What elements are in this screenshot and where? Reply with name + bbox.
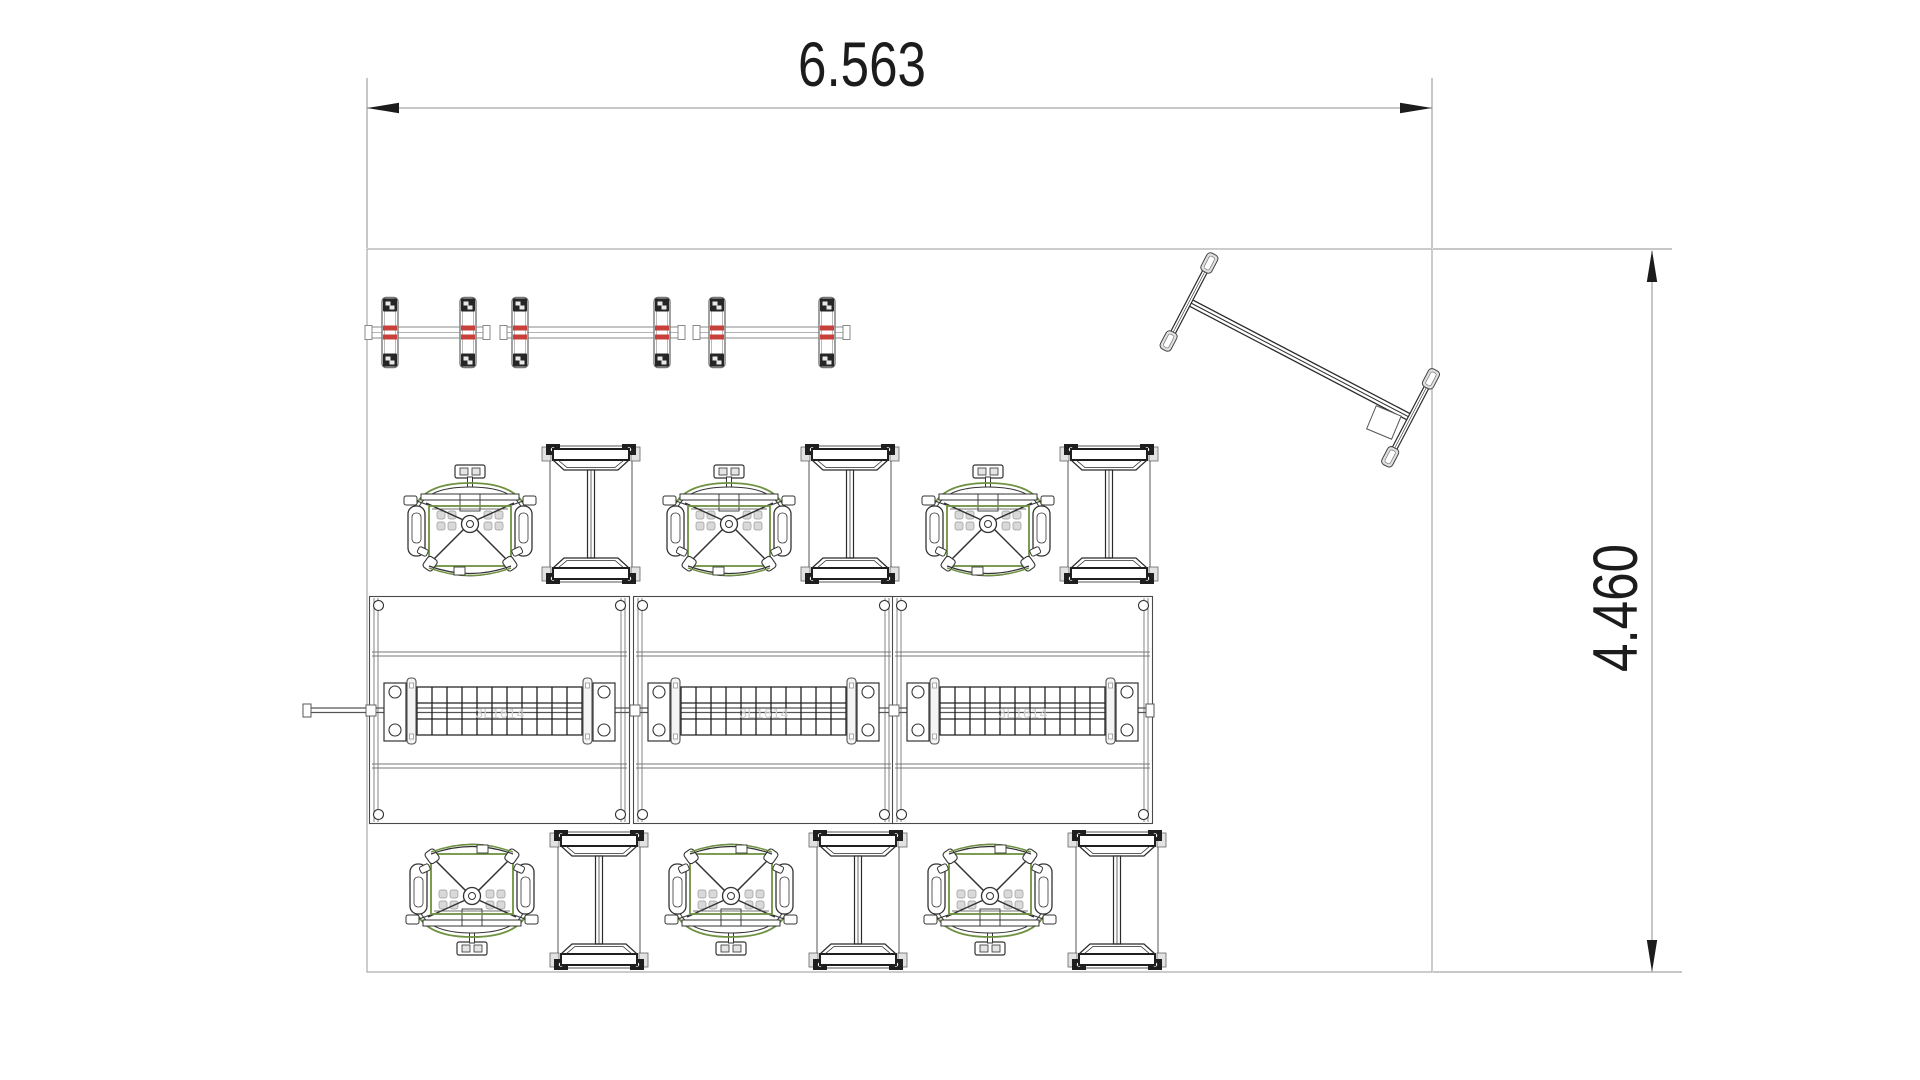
shelf-post	[382, 298, 398, 368]
desk-part-label: 3L1614	[475, 705, 525, 721]
office-chair	[665, 844, 797, 955]
arrowhead-left	[367, 103, 399, 113]
shelf-post	[654, 298, 670, 368]
shelf-rail-endcap	[500, 326, 507, 340]
desk-rail-connector	[366, 705, 376, 716]
shelf-rail-endcap	[693, 326, 700, 340]
side-table	[542, 444, 640, 584]
shelf-rail-endcap	[678, 326, 685, 340]
shelf-rail-endcap	[365, 326, 372, 340]
desk-part-label: 3L1614	[739, 705, 789, 721]
office-chair	[663, 465, 795, 576]
office-chair	[924, 844, 1056, 955]
side-table	[809, 830, 907, 970]
shelf-rail-endcap	[483, 326, 490, 340]
desk-rail-endcap	[303, 704, 311, 717]
side-table	[1068, 830, 1166, 970]
shelf-post	[460, 298, 476, 368]
cad-drawing: 3L16143L16143L1614 6.563 4.460	[0, 0, 1920, 1080]
shelf-post	[819, 298, 835, 368]
furniture-layer: 3L16143L16143L1614	[303, 251, 1441, 970]
vertical-dimension-text: 4.460	[1581, 544, 1651, 672]
desk-rail-connector	[889, 705, 899, 716]
desk-rail-connector	[630, 705, 640, 716]
horizontal-dimension-text: 6.563	[798, 30, 926, 100]
shelf-post	[709, 298, 725, 368]
side-table	[1060, 444, 1158, 584]
arrowhead-right	[1400, 103, 1432, 113]
side-table	[550, 830, 648, 970]
whiteboard-unit	[1159, 251, 1441, 468]
desk-part-label: 3L1614	[998, 705, 1048, 721]
arrowhead-down	[1647, 940, 1657, 972]
office-chair	[922, 465, 1054, 576]
desk-rail-endcap	[1146, 704, 1154, 717]
office-chair	[406, 844, 538, 955]
office-chair	[404, 465, 536, 576]
shelf-post	[512, 298, 528, 368]
floor-plan-canvas: 3L16143L16143L1614 6.563 4.460	[0, 0, 1920, 1080]
shelf-rail-endcap	[843, 326, 850, 340]
side-table	[801, 444, 899, 584]
arrowhead-up	[1647, 250, 1657, 282]
